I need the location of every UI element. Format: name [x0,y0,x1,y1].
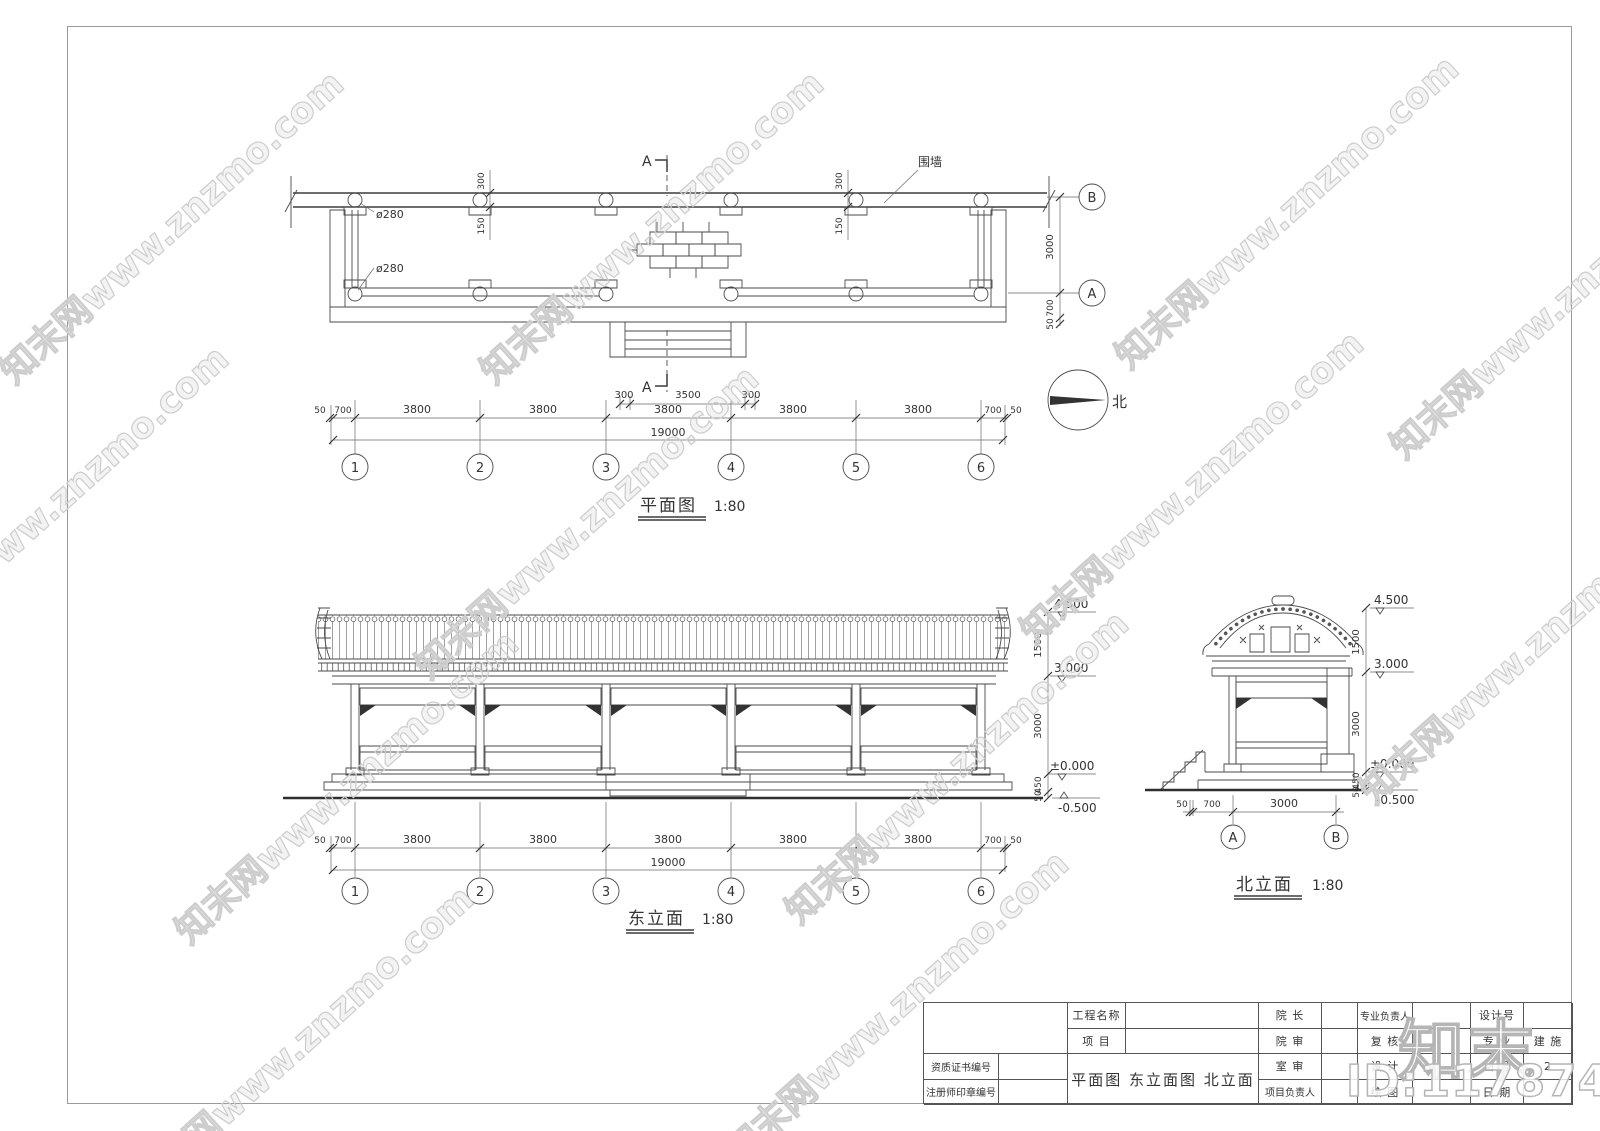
plan-top-columns [344,193,992,215]
level-label: -0.500 [1058,801,1097,815]
sheet-no-label: 图 号 [1471,1054,1524,1080]
project-lead-value [1322,1080,1358,1106]
north-levels: 4.500 3.000 ±0.000 -0.500 1500 3000 450 … [1351,593,1418,807]
grid-bubble: 6 [977,885,985,900]
dean-review-label: 院 审 [1259,1029,1322,1055]
seal-no-value [999,1080,1068,1106]
dim-label: 50 [1010,406,1022,416]
dim-label: 3800 [403,403,431,416]
dim-label: 700 [334,406,351,416]
project-name-label: 工程名称 [1068,1003,1126,1029]
project-name-value [1126,1003,1259,1029]
room-review-label: 室 审 [1259,1054,1322,1080]
dean-review-value [1322,1029,1358,1055]
recheck-value [1413,1029,1471,1055]
project-lead-label: 项目负责人 [1259,1080,1322,1106]
design-no-label: 设计号 [1471,1003,1524,1029]
level-label: 3.000 [1054,661,1088,675]
draft-label: 绘 图 [1358,1080,1413,1106]
title-block-stamp-area [924,1003,1068,1054]
section-letter-top: A [642,154,652,170]
plan-entrance-steps [610,322,746,357]
plan-title: 平面图 [640,496,697,516]
east-dim-chain: 50 700 3800 3800 3800 3800 3800 700 50 1… [314,802,1022,877]
dim-label: 700 [1203,800,1220,810]
plan-view: 围墙 [280,140,1160,540]
level-label: 4.500 [1054,597,1088,611]
section-letter-bottom: A [642,380,652,396]
grid-bubble: 6 [977,461,985,476]
dim-label: 1500 [1033,632,1044,657]
design-value [1413,1054,1471,1080]
east-base [283,774,1043,798]
dean-label: 院 长 [1259,1003,1322,1029]
seal-no-label: 注册师印章编号 [924,1080,999,1106]
east-roof [316,608,1011,671]
dim-label: 300 [614,390,633,401]
north-title-group: 北立面 1:80 [1234,875,1343,899]
plan-beams [362,288,974,296]
dim-label: 50 [1046,318,1056,330]
dim-label: 3800 [654,403,682,416]
east-levels: 4.500 3.000 ±0.000 -0.500 1500 3000 450 … [1033,597,1100,815]
date-value [1524,1080,1573,1106]
level-label: 4.500 [1374,593,1408,607]
east-scale: 1:80 [702,912,733,928]
north-scale: 1:80 [1312,878,1343,894]
design-label: 设 计 [1358,1054,1413,1080]
plan-row-grid: B A 3000 700 50 [1008,184,1105,330]
dean-value [1322,1003,1358,1029]
east-title-group: 东立面 1:80 [626,909,733,933]
plan-paving [330,210,1006,322]
dim-label: 1500 [1351,629,1362,654]
north-title: 北立面 [1236,875,1293,895]
dim-label: 3000 [1033,713,1044,738]
dim-label: 50 [1176,800,1188,810]
plan-bottom-columns [344,280,992,301]
north-roof [1203,596,1363,661]
dim-label: 700 [1046,299,1056,316]
dim-label: 3800 [779,833,807,846]
dim-label: 50 [314,406,326,416]
date-label: 日 期 [1471,1080,1524,1106]
dim-label: 3800 [654,833,682,846]
east-columns [346,684,990,775]
dim-300: 300 [477,172,487,189]
dim-150: 150 [477,217,487,234]
north-base-steps [1145,750,1368,790]
dim-label: 700 [334,836,351,846]
item-label: 项 目 [1068,1029,1126,1055]
discipline-value: 建 施 [1524,1029,1573,1055]
grid-bubble: 3 [602,461,610,476]
end-beams [352,210,984,287]
dim-label: 50 [1010,836,1022,846]
title-block: 工程名称 院 长 专业负责人 设计号 项 目 院 审 复 核 专 业 建 施 资… [923,1002,1572,1104]
plan-scale: 1:80 [714,499,745,515]
col-dia-label-1: ø280 [376,208,404,221]
east-grid-bubbles: 1 2 3 4 5 6 [342,878,994,904]
level-label: ±0.000 [1370,757,1414,771]
north-label: 北 [1112,393,1127,411]
north-needle [1050,396,1106,405]
item-value [1126,1029,1259,1055]
dim-label: 50 [314,836,326,846]
dim-label: 3800 [403,833,431,846]
chief-value [1413,1003,1471,1029]
recheck-label: 复 核 [1358,1029,1413,1055]
east-beam [332,676,996,684]
dim-total: 19000 [651,856,686,869]
east-elevation: 4.500 3.000 ±0.000 -0.500 1500 3000 450 … [280,595,1160,940]
level-label: ±0.000 [1050,759,1094,773]
column-diameter-labels: ø280 ø280 [358,203,404,290]
dim-label: 50 [1034,790,1044,802]
north-lattice-frieze [1236,682,1327,709]
north-dim-chain: 50 700 3000 A B [1176,795,1348,849]
grid-bubble: 4 [727,461,735,476]
dim-label: 50 [1352,786,1362,798]
north-balustrade [1236,742,1327,764]
grid-bubble: A [1229,831,1238,846]
north-compass: 北 [1048,370,1127,430]
grid-bubble: 5 [852,461,860,476]
dim-label: 3000 [1270,797,1298,810]
cert-no-label: 资质证书编号 [924,1054,999,1080]
north-wall-pier [1321,668,1354,772]
dim-150: 150 [835,217,845,234]
section-mark-a: A A [642,154,667,396]
cert-no-value [999,1054,1068,1080]
discipline-label: 专 业 [1471,1029,1524,1055]
drawing-title: 平面图 东立面图 北立面 [1068,1054,1259,1105]
grid-bubble: 2 [476,461,484,476]
grid-bubble: 1 [351,885,359,900]
plan-dim-chain: 50 700 3800 3800 3800 3800 3800 700 50 1… [314,400,1022,454]
grid-bubble-a: A [1088,287,1097,302]
dim-label: 3800 [529,403,557,416]
dim-label: 700 [984,836,1001,846]
plan-grid-bubbles: 1 2 3 4 5 6 [342,454,994,480]
north-elevation: 50 700 3000 A B 4.500 3.000 ±0.000 -0.50… [1140,590,1480,920]
room-review-value [1322,1054,1358,1080]
level-label: 3.000 [1374,657,1408,671]
dim-label: 3000 [1045,234,1056,259]
dim-label: 3800 [779,403,807,416]
east-balustrades [360,746,976,770]
dim-label: 3800 [904,833,932,846]
grid-bubble-b: B [1088,191,1097,206]
draft-value [1413,1080,1471,1106]
dim-label: 3800 [904,403,932,416]
grid-bubble: B [1332,831,1341,846]
grid-bubble: 2 [476,885,484,900]
wall-label: 围墙 [918,155,942,169]
col-dia-label-2: ø280 [376,262,404,275]
level-label: -0.500 [1376,793,1415,807]
plan-wall-dims: 300 150 300 150 [477,170,852,240]
plan-title-group: 平面图 1:80 [638,496,745,520]
dim-label: 300 [741,390,760,401]
plan-brick-detail [630,222,741,278]
wall-label-group: 围墙 [884,155,942,203]
chief-label: 专业负责人 [1358,1003,1413,1029]
sheet-no-value: 2 [1524,1054,1573,1080]
east-title: 东立面 [628,909,685,929]
grid-bubble: 1 [351,461,359,476]
dim-label: 3800 [529,833,557,846]
east-lattice-frieze [360,688,976,716]
dim-label: 700 [984,406,1001,416]
grid-bubble: 4 [727,885,735,900]
dim-label: 3500 [675,390,700,401]
drawing-sheet: 围墙 [0,0,1600,1131]
north-column [1224,676,1241,772]
dim-total: 19000 [651,426,686,439]
dim-label: 3000 [1351,711,1362,736]
dim-300: 300 [835,172,845,189]
grid-bubble: 5 [852,885,860,900]
plan-entrance-dims: 300 3500 300 [614,390,760,410]
design-no-value [1524,1003,1573,1029]
grid-bubble: 3 [602,885,610,900]
north-beam [1212,668,1352,676]
